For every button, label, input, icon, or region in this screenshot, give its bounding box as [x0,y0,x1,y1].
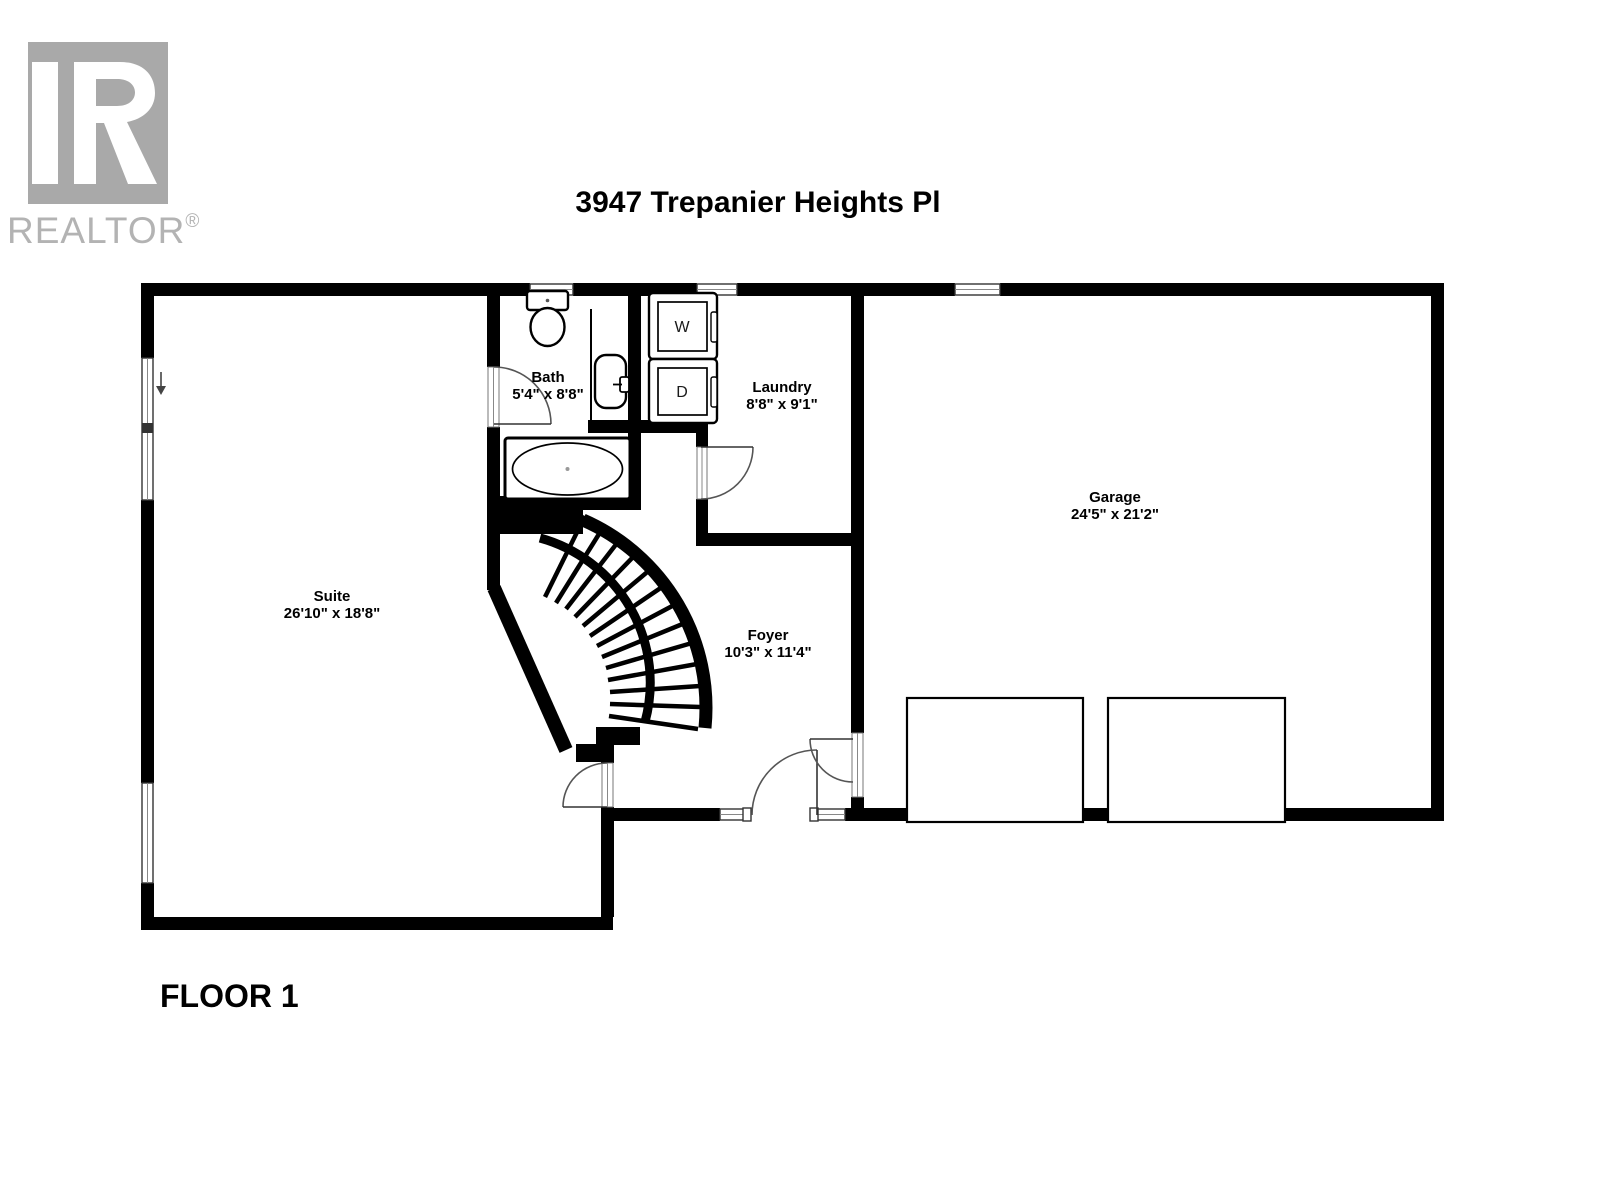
room-label-laundry: Laundry 8'8" x 9'1" [746,379,817,413]
realtor-logo: REALTOR® [7,42,200,251]
bath-door-frame [488,367,499,427]
suite-door [563,763,607,807]
svg-text:26'10" x 18'8": 26'10" x 18'8" [284,605,380,622]
svg-text:5'4" x 8'8": 5'4" x 8'8" [512,386,583,403]
svg-text:Laundry: Laundry [752,379,812,396]
window-garage-top [955,284,1000,295]
window-suite-left-upper [142,358,153,500]
realtor-logo-bar [32,62,58,184]
sink [591,309,629,420]
garage-door-right [1108,698,1285,822]
staircase [540,516,706,729]
entry-door [752,750,817,815]
page-title: 3947 Trepanier Heights Pl [575,186,940,219]
entry-door-jamb-left [743,808,751,821]
svg-text:8'8" x 9'1": 8'8" x 9'1" [746,396,817,413]
laundry-door-frame [697,447,707,499]
bathtub [505,438,630,499]
windows [142,284,1000,883]
dryer: D [649,359,717,423]
realtor-wordmark: REALTOR® [7,210,200,251]
svg-text:Suite: Suite [314,588,351,605]
garage-person-door-frame [852,733,863,797]
washer-label: W [674,319,690,336]
svg-text:Foyer: Foyer [748,627,789,644]
toilet [527,291,568,346]
window-suite-left-lower [142,783,153,883]
entry-sidelight-right [817,809,845,820]
room-label-suite: Suite 26'10" x 18'8" [284,588,380,622]
floor-plan-page: REALTOR® 3947 Trepanier Heights Pl FLOOR… [0,0,1600,1200]
garage-door-left [907,698,1083,822]
floor-label: FLOOR 1 [160,978,299,1014]
stair-outer-rail [583,520,706,728]
svg-text:Garage: Garage [1089,489,1141,506]
floor-plan-svg: REALTOR® 3947 Trepanier Heights Pl FLOOR… [0,0,1600,1200]
svg-text:10'3" x 11'4": 10'3" x 11'4" [724,644,811,661]
svg-text:24'5" x 21'2": 24'5" x 21'2" [1071,506,1159,523]
svg-text:Bath: Bath [531,369,564,386]
fixtures: W D [156,291,1285,822]
direction-arrow-icon [156,372,166,395]
room-labels: Suite 26'10" x 18'8" Bath 5'4" x 8'8" La… [284,369,1159,661]
room-label-foyer: Foyer 10'3" x 11'4" [724,627,811,661]
washer: W [649,293,717,359]
room-label-garage: Garage 24'5" x 21'2" [1071,489,1159,523]
laundry-door [701,447,753,499]
dryer-label: D [676,384,688,401]
suite-door-frame [602,763,613,807]
